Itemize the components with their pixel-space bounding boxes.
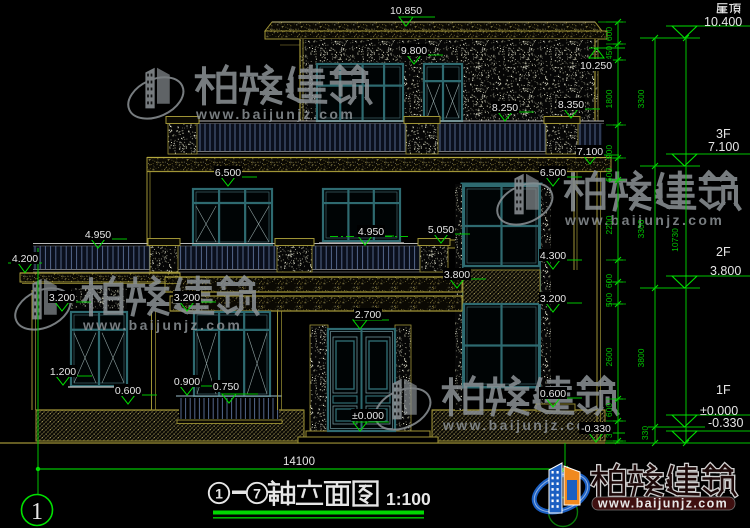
svg-text:www.baijunjz.com: www.baijunjz.com — [195, 106, 355, 122]
svg-text:0.600: 0.600 — [540, 388, 566, 400]
svg-text:3.200: 3.200 — [540, 293, 566, 305]
svg-text:2200: 2200 — [604, 215, 614, 234]
svg-text:900: 900 — [604, 145, 614, 159]
svg-text:0.600: 0.600 — [115, 385, 141, 397]
svg-text:8.350: 8.350 — [558, 99, 584, 111]
svg-text:0.900: 0.900 — [174, 376, 200, 388]
svg-text:±0.000: ±0.000 — [352, 410, 384, 422]
svg-text:2.700: 2.700 — [355, 309, 381, 321]
svg-text:3300: 3300 — [636, 89, 646, 108]
svg-text:2600: 2600 — [604, 347, 614, 366]
svg-text:6.500: 6.500 — [540, 167, 566, 179]
svg-text:1:100: 1:100 — [386, 489, 431, 509]
svg-text:7.100: 7.100 — [708, 140, 739, 154]
svg-text:600: 600 — [604, 27, 614, 41]
svg-text:5.050: 5.050 — [428, 224, 454, 236]
svg-text:600: 600 — [604, 274, 614, 288]
svg-text:3.200: 3.200 — [174, 292, 200, 304]
svg-text:1.200: 1.200 — [50, 366, 76, 378]
svg-text:4.300: 4.300 — [540, 250, 566, 262]
svg-text:1: 1 — [215, 486, 223, 502]
svg-text:10.250: 10.250 — [580, 60, 612, 72]
svg-text:9.800: 9.800 — [401, 45, 427, 57]
svg-text:10.400: 10.400 — [704, 15, 742, 29]
svg-text:4.950: 4.950 — [358, 226, 384, 238]
svg-text:7: 7 — [253, 486, 261, 502]
svg-text:330: 330 — [640, 426, 650, 440]
svg-text:-0.330: -0.330 — [708, 416, 743, 430]
svg-text:14100: 14100 — [283, 456, 315, 468]
svg-text:www.baijunjz.com: www.baijunjz.com — [597, 497, 728, 511]
svg-text:10.850: 10.850 — [390, 5, 422, 17]
svg-text:3.200: 3.200 — [49, 292, 75, 304]
svg-text:10730: 10730 — [670, 228, 680, 252]
svg-text:6.500: 6.500 — [215, 167, 241, 179]
svg-text:600: 600 — [604, 403, 614, 417]
svg-text:7.100: 7.100 — [577, 146, 603, 158]
svg-text:4.950: 4.950 — [85, 229, 111, 241]
svg-text:8.250: 8.250 — [492, 102, 518, 114]
svg-text:3F: 3F — [716, 127, 731, 141]
svg-text:2F: 2F — [716, 245, 731, 259]
svg-text:3.800: 3.800 — [444, 269, 470, 281]
svg-text:3.800: 3.800 — [710, 264, 741, 278]
svg-text:www.baijunjz.com: www.baijunjz.com — [82, 317, 242, 333]
svg-text:1: 1 — [31, 499, 43, 525]
svg-text:3300: 3300 — [636, 219, 646, 238]
svg-text:1800: 1800 — [604, 89, 614, 108]
svg-text:www.baijunjz.com: www.baijunjz.com — [442, 417, 602, 433]
svg-text:3800: 3800 — [636, 348, 646, 367]
svg-text:-0.330: -0.330 — [581, 423, 611, 435]
svg-text:1F: 1F — [716, 383, 731, 397]
svg-text:500: 500 — [604, 293, 614, 307]
svg-text:0.750: 0.750 — [213, 381, 239, 393]
svg-text:4.200: 4.200 — [12, 253, 38, 265]
